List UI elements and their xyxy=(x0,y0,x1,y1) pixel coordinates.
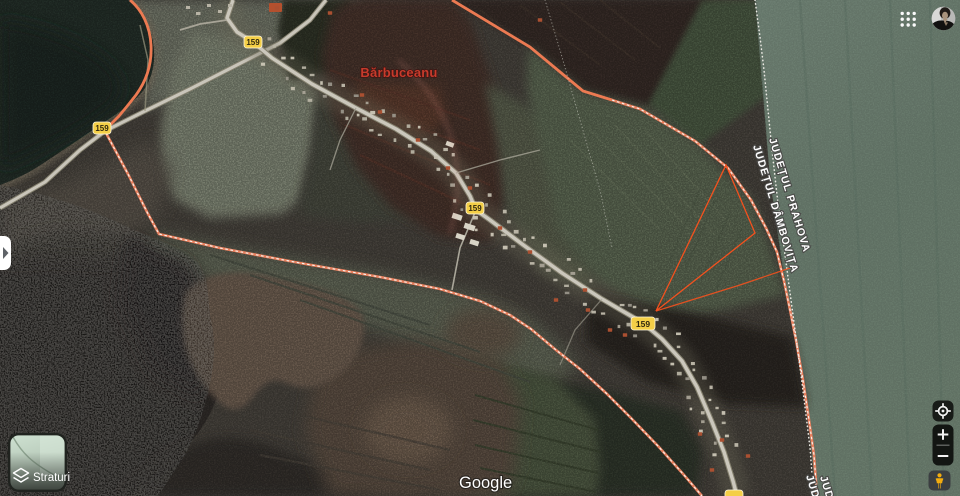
svg-text:159: 159 xyxy=(246,38,260,47)
svg-text:Google: Google xyxy=(459,474,512,492)
svg-text:159: 159 xyxy=(468,204,482,213)
svg-text:Bărbuceanu: Bărbuceanu xyxy=(360,65,437,80)
svg-text:Straturi: Straturi xyxy=(33,472,70,484)
svg-text:159: 159 xyxy=(95,124,109,133)
svg-text:159: 159 xyxy=(636,319,650,329)
